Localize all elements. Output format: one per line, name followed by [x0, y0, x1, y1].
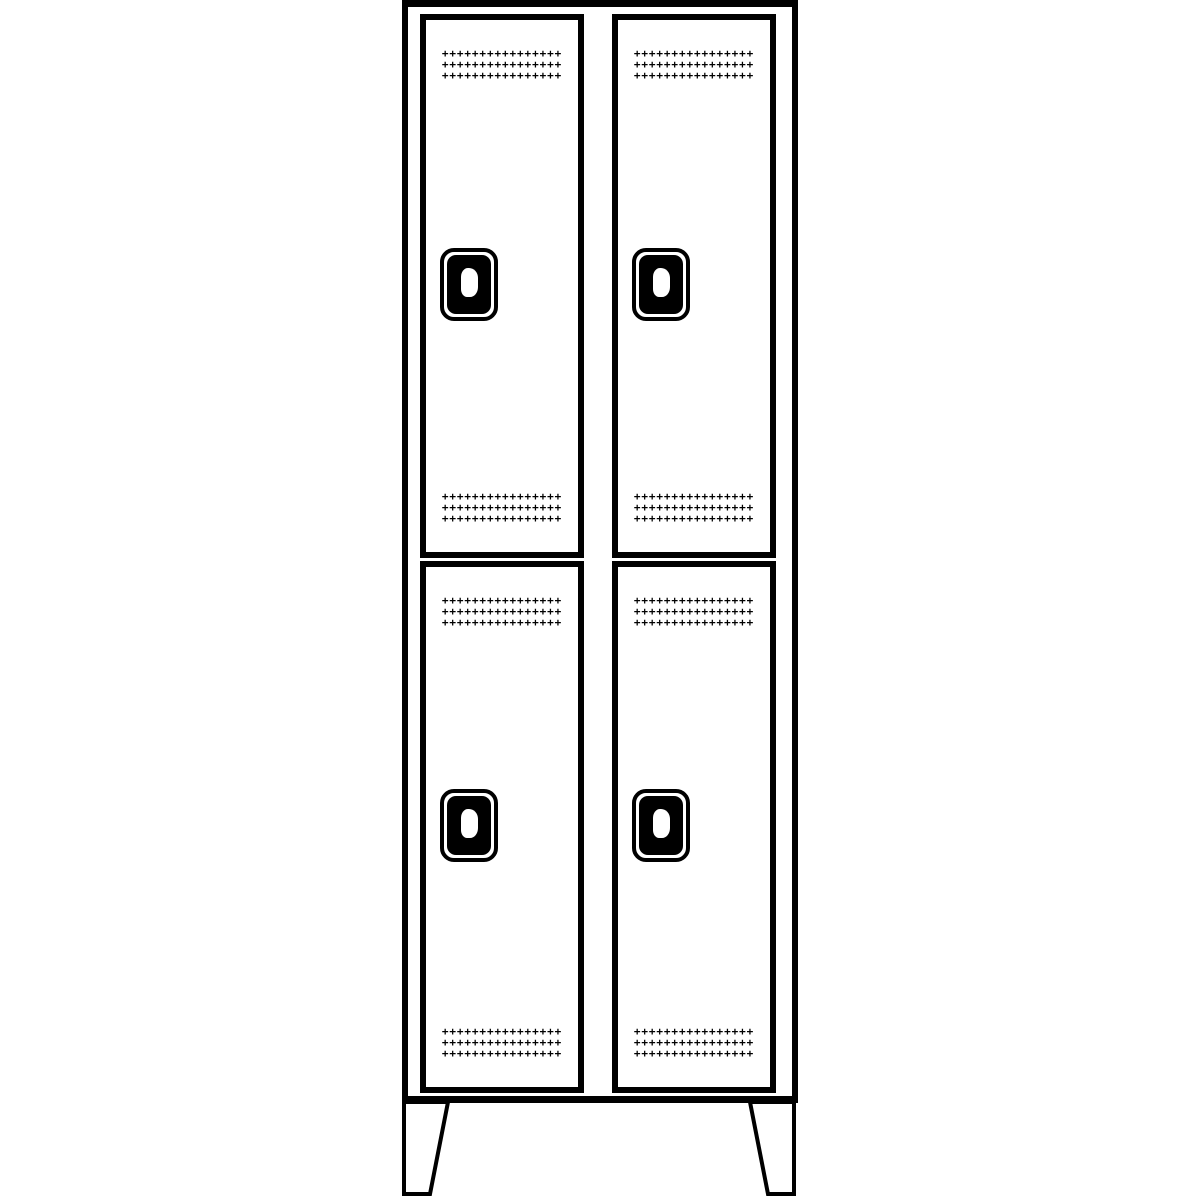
handle-grip-cutout	[653, 809, 670, 838]
handle-grip-cutout	[461, 268, 478, 297]
handle-lock-plate	[639, 255, 683, 314]
handle-lock-plate	[639, 796, 683, 855]
vent-perforation-bottom: ++++++++++++++++ ++++++++++++++++ ++++++…	[618, 1026, 770, 1059]
door-handle	[632, 248, 690, 321]
locker-door-top-right: ++++++++++++++++ ++++++++++++++++ ++++++…	[612, 14, 776, 558]
locker-door-bottom-left: ++++++++++++++++ ++++++++++++++++ ++++++…	[420, 561, 584, 1093]
door-handle	[632, 789, 690, 862]
vent-perforation-bottom: ++++++++++++++++ ++++++++++++++++ ++++++…	[426, 491, 578, 524]
handle-grip-cutout	[653, 268, 670, 297]
vent-perforation-bottom: ++++++++++++++++ ++++++++++++++++ ++++++…	[426, 1026, 578, 1059]
locker-product-line-drawing: ++++++++++++++++ ++++++++++++++++ ++++++…	[0, 0, 1200, 1200]
vent-perforation-bottom: ++++++++++++++++ ++++++++++++++++ ++++++…	[618, 491, 770, 524]
vent-perforation-top: ++++++++++++++++ ++++++++++++++++ ++++++…	[618, 595, 770, 628]
handle-grip-cutout	[461, 809, 478, 838]
locker-door-top-left: ++++++++++++++++ ++++++++++++++++ ++++++…	[420, 14, 584, 558]
door-handle	[440, 248, 498, 321]
handle-lock-plate	[447, 255, 491, 314]
left-foot	[402, 1100, 450, 1196]
vent-perforation-top: ++++++++++++++++ ++++++++++++++++ ++++++…	[618, 48, 770, 81]
right-foot	[748, 1100, 796, 1196]
handle-lock-plate	[447, 796, 491, 855]
door-handle	[440, 789, 498, 862]
vent-perforation-top: ++++++++++++++++ ++++++++++++++++ ++++++…	[426, 595, 578, 628]
locker-door-bottom-right: ++++++++++++++++ ++++++++++++++++ ++++++…	[612, 561, 776, 1093]
vent-perforation-top: ++++++++++++++++ ++++++++++++++++ ++++++…	[426, 48, 578, 81]
